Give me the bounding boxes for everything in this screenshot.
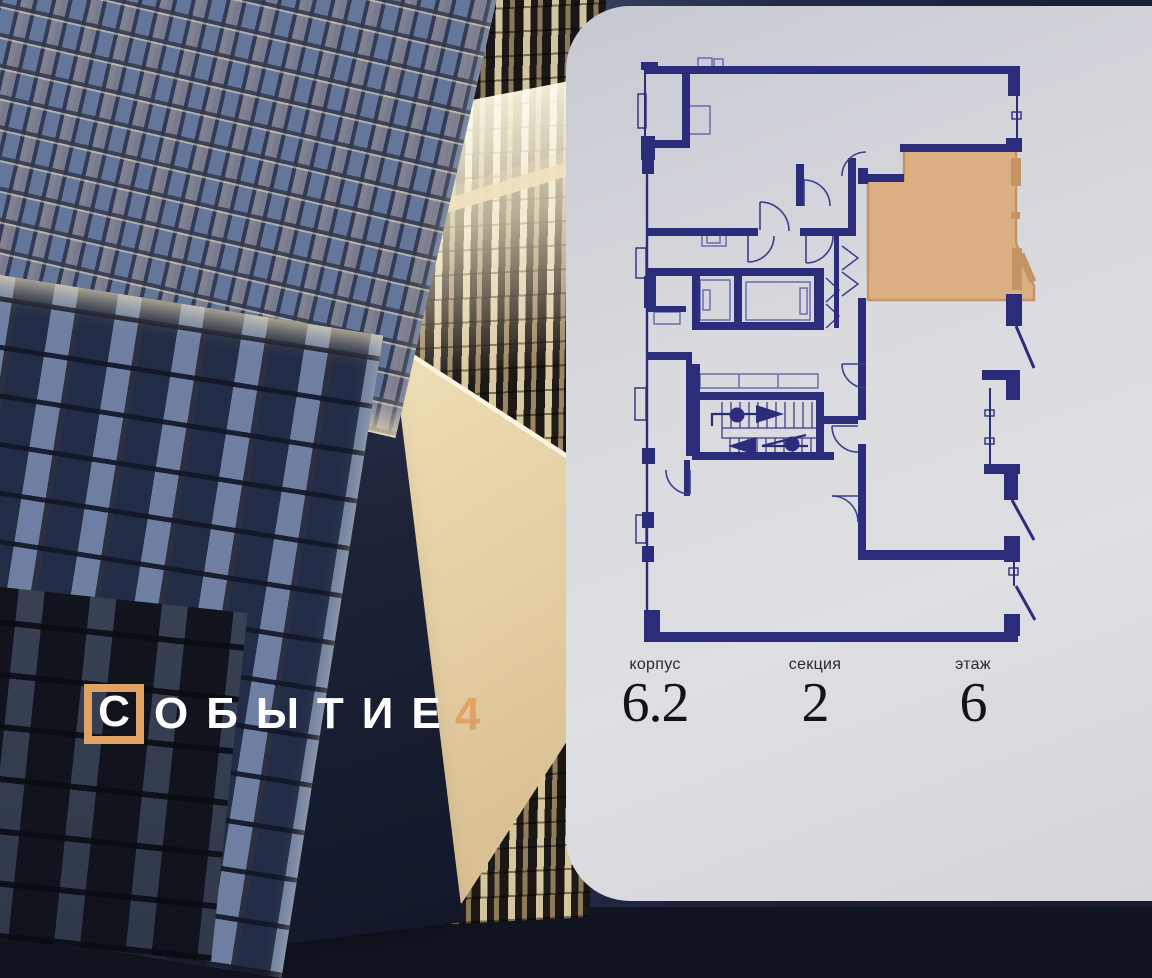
stat-korpus: корпус 6.2	[590, 656, 720, 733]
stat-etazh: этаж 6	[908, 656, 1038, 733]
logo-text: ОБЫТИЕ	[154, 692, 459, 736]
logo-number: 4	[455, 691, 481, 737]
apartment-stats: корпус 6.2 секция 2 этаж 6	[566, 656, 1152, 766]
stat-sekcia-value: 2	[750, 674, 880, 733]
stat-korpus-value: 6.2	[590, 674, 720, 733]
walls	[641, 62, 1022, 642]
logo-letter: С	[98, 690, 130, 734]
floor-plan	[566, 6, 1152, 901]
stat-etazh-value: 6	[908, 674, 1038, 733]
floorplan-panel: корпус 6.2 секция 2 этаж 6	[566, 6, 1152, 901]
stat-sekcia: секция 2	[750, 656, 880, 733]
logo-letter-box: С	[84, 684, 144, 744]
fixtures	[654, 58, 818, 388]
elevator-door-symbols	[826, 246, 858, 328]
selected-apartment[interactable]	[868, 148, 1034, 300]
door-swings	[666, 152, 866, 522]
foreground-building	[0, 585, 248, 961]
staircase	[712, 402, 818, 455]
brand-logo[interactable]: С ОБЫТИЕ 4	[84, 684, 480, 744]
